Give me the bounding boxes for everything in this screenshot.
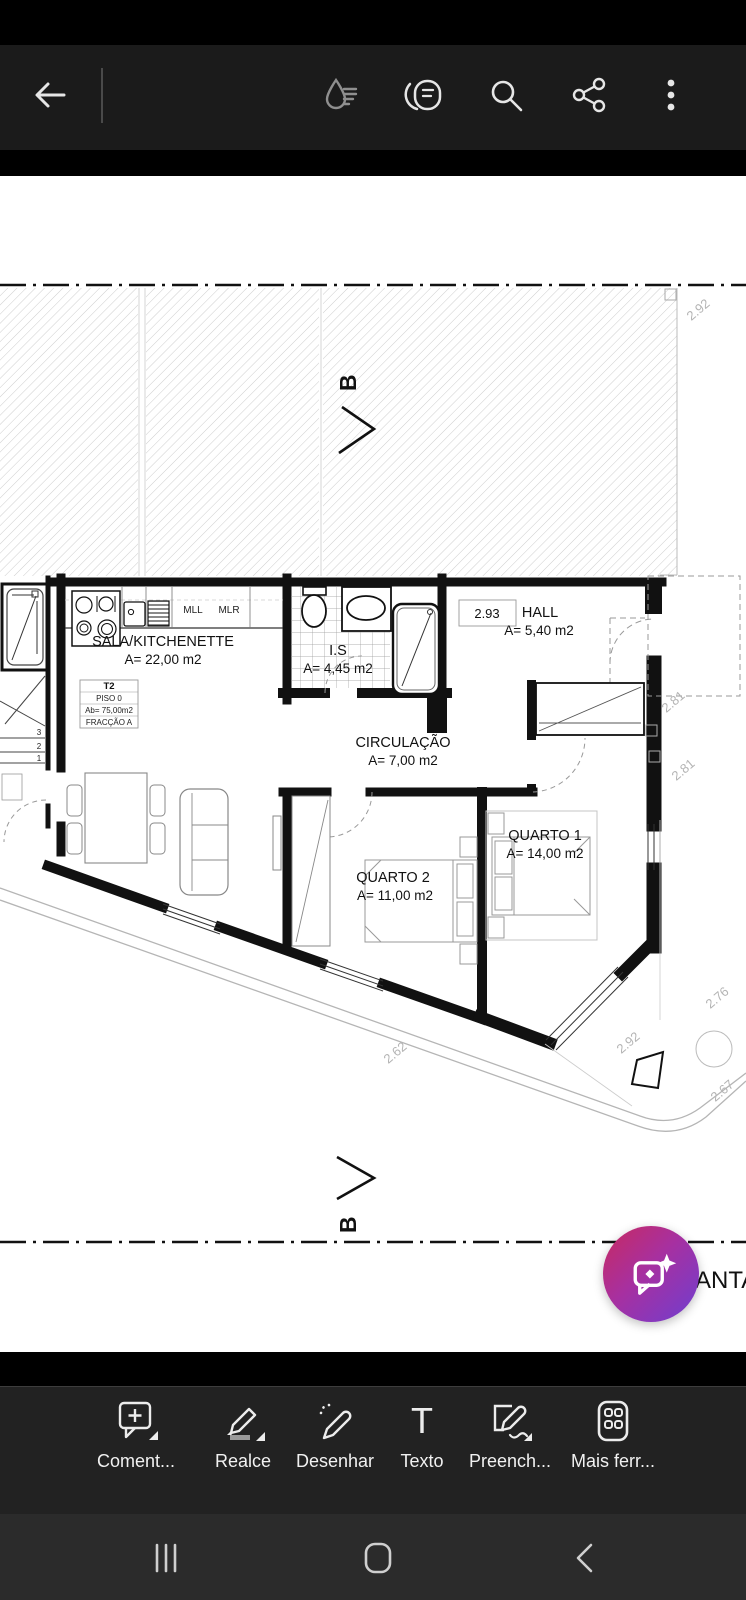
entrance-porch xyxy=(610,576,740,696)
home-icon xyxy=(356,1536,400,1580)
toolbar-divider xyxy=(101,68,103,123)
svg-text:2.76: 2.76 xyxy=(703,984,732,1012)
recents-icon xyxy=(144,1536,188,1580)
tool-more-tools[interactable]: Mais ferr... xyxy=(565,1397,661,1472)
site-elements xyxy=(0,888,746,1131)
label-mll: MLL xyxy=(183,605,203,616)
text-tool-icon: T xyxy=(398,1397,446,1445)
svg-text:T2: T2 xyxy=(103,681,114,692)
door-leaf xyxy=(273,816,281,870)
section-marker-bottom: B xyxy=(335,1157,374,1233)
tool-label: Coment... xyxy=(88,1451,184,1472)
back-arrow-icon xyxy=(28,73,72,117)
tool-highlight[interactable]: Realce xyxy=(195,1397,291,1472)
more-options-button[interactable] xyxy=(649,73,693,117)
search-icon xyxy=(484,73,528,117)
svg-text:PISO 0: PISO 0 xyxy=(96,694,122,703)
view-settings-button[interactable] xyxy=(402,73,446,117)
more-options-icon xyxy=(649,73,693,117)
label-quarto1: QUARTO 1 xyxy=(508,828,582,844)
share-icon xyxy=(567,73,611,117)
stair-core: 3 2 1 xyxy=(0,584,48,800)
liquid-mode-button[interactable] xyxy=(320,73,364,117)
status-bar xyxy=(0,0,746,45)
back-chevron-icon xyxy=(563,1536,607,1580)
comment-plus-icon xyxy=(112,1397,160,1445)
highlighter-icon xyxy=(219,1397,267,1445)
svg-text:1: 1 xyxy=(37,754,42,763)
svg-text:B: B xyxy=(335,374,361,391)
liquid-mode-icon xyxy=(320,73,364,117)
tool-label: Preench... xyxy=(462,1451,558,1472)
back-button[interactable] xyxy=(28,73,72,117)
tool-draw[interactable]: Desenhar xyxy=(287,1397,383,1472)
home-button[interactable] xyxy=(356,1536,400,1580)
pdf-page[interactable]: 2.92 B xyxy=(0,176,746,1352)
room-labels: SALA/KITCHENETTE A= 22,00 m2 I.S A= 4,45… xyxy=(92,605,583,903)
search-button[interactable] xyxy=(484,73,528,117)
column xyxy=(632,1052,663,1088)
sofa xyxy=(180,789,228,895)
label-circulacao: CIRCULAÇÃO xyxy=(355,734,450,751)
dish-drainer xyxy=(148,601,169,626)
label-hall: HALL xyxy=(522,605,558,621)
share-button[interactable] xyxy=(567,73,611,117)
dim-top-right: 2.92 xyxy=(684,296,713,324)
tool-label: Desenhar xyxy=(287,1451,383,1472)
dining-table xyxy=(85,773,147,863)
label-is: I.S xyxy=(329,643,347,659)
tool-text[interactable]: T Texto xyxy=(374,1397,470,1472)
bathtub xyxy=(393,604,439,694)
tool-label: Texto xyxy=(374,1451,470,1472)
sidewalk-line-1 xyxy=(0,888,746,1121)
svg-text:A= 7,00 m2: A= 7,00 m2 xyxy=(368,753,437,768)
svg-text:FRACÇÃO A: FRACÇÃO A xyxy=(86,718,133,727)
svg-text:A= 14,00 m2: A= 14,00 m2 xyxy=(507,846,584,861)
annotation-toolbar: Coment... Realce Desenhar T Texto xyxy=(0,1386,746,1515)
partial-drawing-title: ANTA xyxy=(695,1267,746,1294)
kitchen-sink xyxy=(124,602,145,626)
svg-text:B: B xyxy=(335,1216,361,1233)
svg-text:T: T xyxy=(411,1400,433,1441)
tool-fill-sign[interactable]: Preench... xyxy=(462,1397,558,1472)
hatched-area xyxy=(0,288,677,576)
svg-text:2.92: 2.92 xyxy=(614,1029,643,1057)
svg-text:2.62: 2.62 xyxy=(381,1039,410,1067)
tool-label: Realce xyxy=(195,1451,291,1472)
hall-closet xyxy=(536,683,644,735)
draw-pen-icon xyxy=(311,1397,359,1445)
svg-text:A= 22,00 m2: A= 22,00 m2 xyxy=(125,652,202,667)
phone-screen: 2.92 B xyxy=(0,0,746,1600)
unit-info-box: T2 PISO 0 Ab= 75,00m2 FRACÇÃO A xyxy=(80,680,138,728)
android-nav-bar xyxy=(0,1514,746,1600)
ai-chat-sparkle-icon xyxy=(624,1247,678,1301)
more-tools-grid-icon xyxy=(589,1397,637,1445)
svg-text:A= 11,00 m2: A= 11,00 m2 xyxy=(357,888,433,903)
svg-text:2.81: 2.81 xyxy=(659,688,688,716)
view-settings-icon xyxy=(402,73,446,117)
floor-plan-drawing: 2.92 B xyxy=(0,176,746,1352)
bathroom xyxy=(291,587,439,694)
svg-text:2: 2 xyxy=(37,742,42,751)
svg-text:Ab= 75,00m2: Ab= 75,00m2 xyxy=(85,706,133,715)
tree-circle xyxy=(696,1031,732,1067)
ai-assistant-fab[interactable] xyxy=(603,1226,699,1322)
back-nav-button[interactable] xyxy=(563,1536,607,1580)
top-toolbar xyxy=(0,45,746,150)
svg-text:2.93: 2.93 xyxy=(474,606,499,621)
tool-comment[interactable]: Coment... xyxy=(88,1397,184,1472)
svg-text:2.81: 2.81 xyxy=(669,756,698,784)
svg-text:3: 3 xyxy=(37,728,42,737)
wardrobe-quarto2 xyxy=(292,796,330,946)
svg-text:A= 4,45 m2: A= 4,45 m2 xyxy=(303,661,372,676)
label-mlr: MLR xyxy=(218,605,239,616)
label-quarto2: QUARTO 2 xyxy=(356,870,430,886)
recents-button[interactable] xyxy=(144,1536,188,1580)
tool-label: Mais ferr... xyxy=(565,1451,661,1472)
svg-text:A= 5,40 m2: A= 5,40 m2 xyxy=(504,623,573,638)
label-sala: SALA/KITCHENETTE xyxy=(92,634,234,650)
furniture xyxy=(67,773,597,964)
fill-sign-icon xyxy=(486,1397,534,1445)
